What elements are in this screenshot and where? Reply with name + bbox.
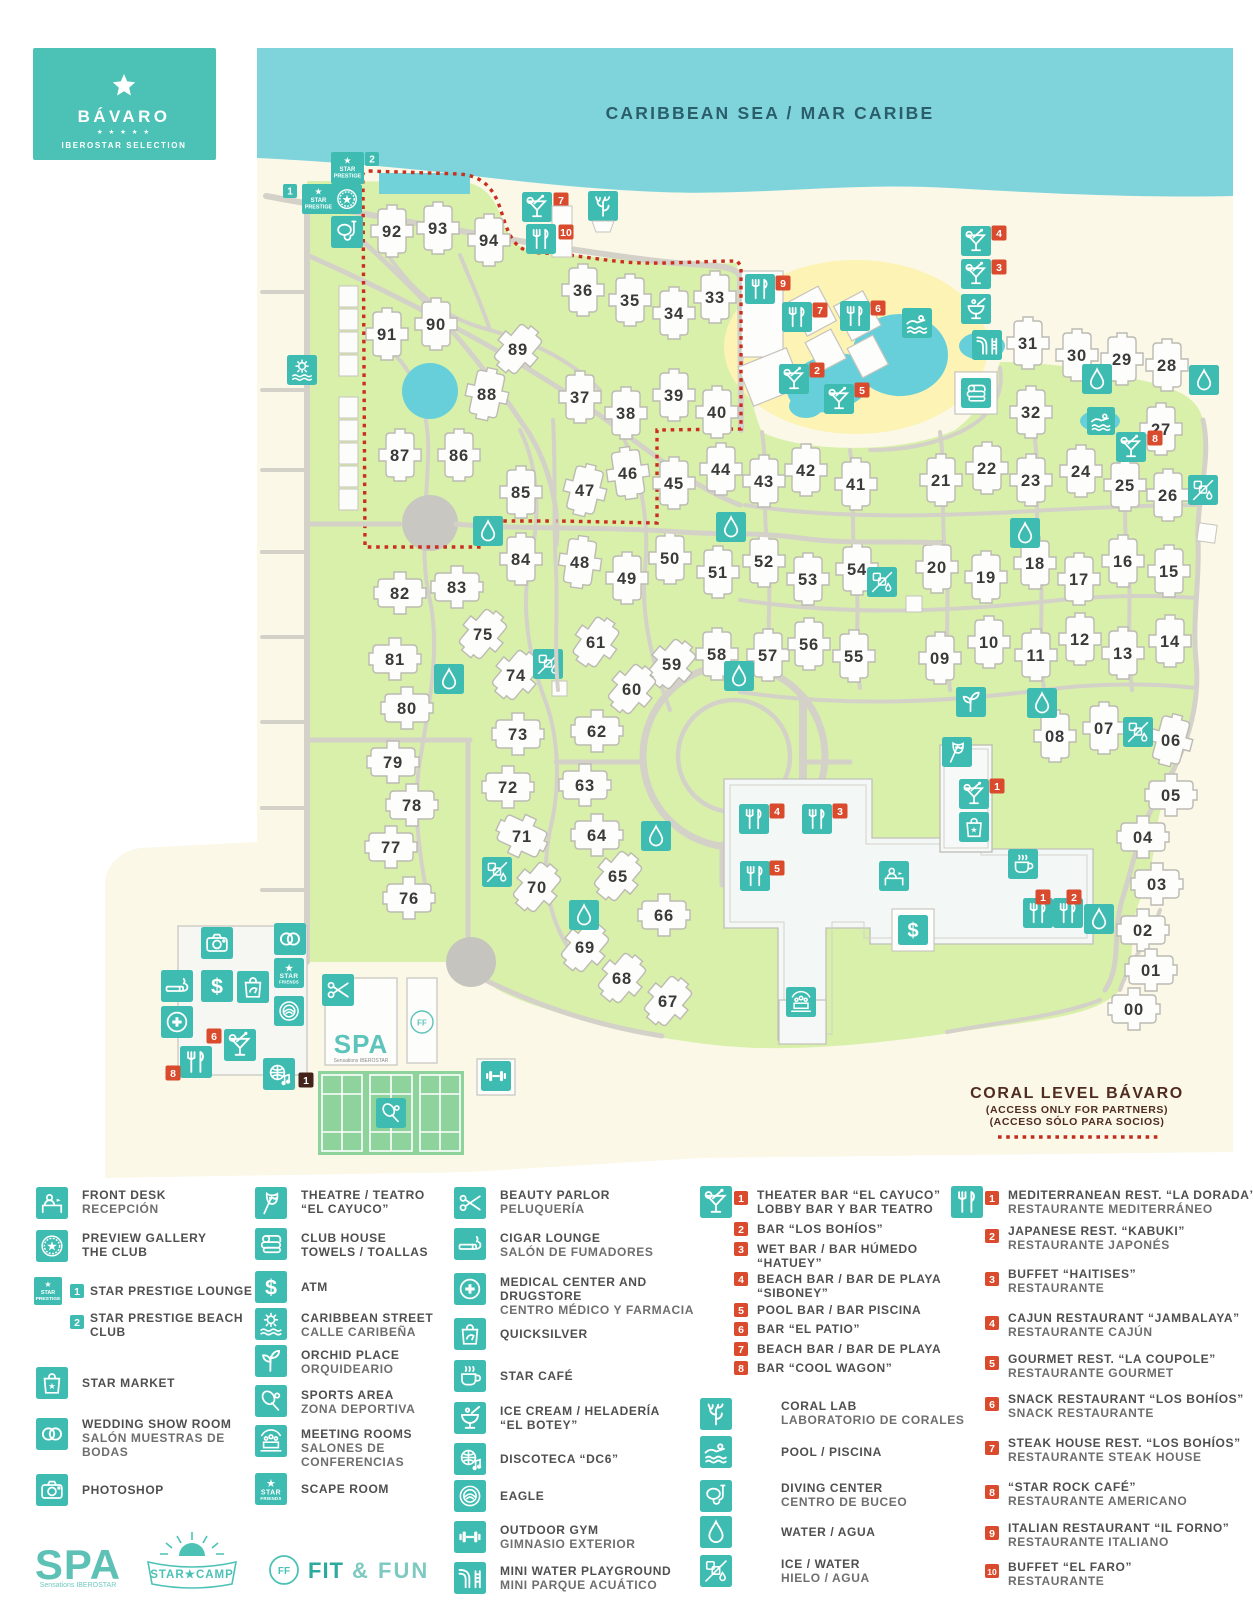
svg-text:05: 05 [1161,787,1181,805]
svg-text:5: 5 [738,1305,744,1317]
svg-text:RESTAURANTE MEDITERRÁNEO: RESTAURANTE MEDITERRÁNEO [1008,1201,1213,1216]
svg-text:04: 04 [1133,829,1153,847]
svg-text:2: 2 [1071,892,1077,904]
svg-text:92: 92 [382,223,402,241]
svg-text:43: 43 [754,473,774,491]
svg-text:82: 82 [390,585,410,603]
svg-text:WEDDING SHOW ROOM: WEDDING SHOW ROOM [82,1417,232,1431]
svg-text:2: 2 [989,1231,995,1243]
svg-text:24: 24 [1071,463,1091,481]
svg-text:22: 22 [977,460,997,478]
svg-text:6: 6 [211,1031,217,1043]
svg-text:CORAL LAB: CORAL LAB [781,1399,857,1413]
svg-text:88: 88 [477,386,497,404]
svg-text:RESTAURANTE CAJÚN: RESTAURANTE CAJÚN [1008,1324,1153,1339]
svg-text:ORQUIDEARIO: ORQUIDEARIO [301,1362,394,1376]
svg-text:5: 5 [774,863,780,875]
svg-text:69: 69 [575,939,595,957]
svg-text:STAR PRESTIGE BEACH: STAR PRESTIGE BEACH [90,1311,243,1325]
svg-text:61: 61 [586,634,606,652]
svg-text:1: 1 [738,1193,744,1205]
svg-text:4: 4 [738,1274,744,1286]
svg-text:77: 77 [381,839,401,857]
svg-text:63: 63 [575,777,595,795]
svg-text:DISCOTECA “DC6”: DISCOTECA “DC6” [500,1452,619,1466]
svg-text:BUFFET “HAITISES”: BUFFET “HAITISES” [1008,1267,1136,1281]
svg-text:MEDITERRANEAN REST. “LA DORADA: MEDITERRANEAN REST. “LA DORADA” [1008,1188,1253,1202]
svg-text:70: 70 [527,879,547,897]
svg-text:FIT: FIT [308,1558,344,1583]
svg-text:5: 5 [859,385,865,397]
svg-text:54: 54 [847,561,867,579]
svg-text:67: 67 [658,993,678,1011]
svg-text:40: 40 [707,404,727,422]
svg-text:PELUQUERÍA: PELUQUERÍA [500,1201,585,1216]
svg-text:BEACH BAR / BAR DE PLAYA: BEACH BAR / BAR DE PLAYA [757,1342,941,1356]
svg-text:RECEPCIÓN: RECEPCIÓN [82,1201,159,1216]
svg-text:“SIBONEY”: “SIBONEY” [757,1286,828,1300]
svg-text:44: 44 [711,461,731,479]
svg-text:IBEROSTAR SELECTION: IBEROSTAR SELECTION [62,141,187,150]
svg-text:73: 73 [508,726,528,744]
svg-text:RESTAURANTE STEAK HOUSE: RESTAURANTE STEAK HOUSE [1008,1450,1202,1464]
svg-text:BAR “COOL WAGON”: BAR “COOL WAGON” [757,1361,892,1375]
svg-text:41: 41 [846,476,866,494]
svg-text:THEATER BAR “EL CAYUCO”: THEATER BAR “EL CAYUCO” [757,1188,941,1202]
svg-text:34: 34 [664,305,684,323]
svg-text:RESTAURANTE AMERICANO: RESTAURANTE AMERICANO [1008,1494,1187,1508]
svg-text:POOL BAR / BAR PISCINA: POOL BAR / BAR PISCINA [757,1303,921,1317]
svg-text:GOURMET REST. “LA COUPOLE”: GOURMET REST. “LA COUPOLE” [1008,1352,1216,1366]
svg-text:DIVING CENTER: DIVING CENTER [781,1481,883,1495]
svg-text:SPORTS AREA: SPORTS AREA [301,1388,394,1402]
svg-text:36: 36 [573,282,593,300]
svg-text:TOWELS / TOALLAS: TOWELS / TOALLAS [301,1245,428,1259]
svg-text:49: 49 [617,570,637,588]
svg-text:26: 26 [1158,487,1178,505]
svg-text:FRONT DESK: FRONT DESK [82,1188,166,1202]
svg-text:RESTAURANTE JAPONÉS: RESTAURANTE JAPONÉS [1008,1237,1170,1252]
svg-text:CORAL LEVEL BÁVARO: CORAL LEVEL BÁVARO [970,1083,1184,1102]
svg-text:1: 1 [287,187,293,198]
svg-text:ZONA DEPORTIVA: ZONA DEPORTIVA [301,1402,415,1416]
svg-text:15: 15 [1159,563,1179,581]
svg-text:2: 2 [738,1224,744,1236]
svg-text:CLUB HOUSE: CLUB HOUSE [301,1231,386,1245]
svg-text:CARIBBEAN SEA / MAR CARIBE: CARIBBEAN SEA / MAR CARIBE [606,103,935,123]
svg-text:STAR★CAMP: STAR★CAMP [150,1568,234,1581]
svg-text:65: 65 [608,868,628,886]
svg-text:MEETING ROOMS: MEETING ROOMS [301,1427,412,1441]
svg-text:64: 64 [587,827,607,845]
svg-text:51: 51 [708,564,728,582]
svg-text:6: 6 [875,303,881,315]
svg-text:13: 13 [1113,645,1133,663]
svg-text:85: 85 [511,484,531,502]
svg-text:19: 19 [976,569,996,587]
svg-text:10: 10 [979,634,999,652]
svg-text:76: 76 [399,890,419,908]
svg-text:06: 06 [1161,732,1181,750]
svg-text:78: 78 [402,797,422,815]
svg-text:Sensations IBEROSTAR: Sensations IBEROSTAR [334,1058,389,1064]
svg-text:STAR PRESTIGE LOUNGE: STAR PRESTIGE LOUNGE [90,1284,252,1298]
svg-text:59: 59 [662,656,682,674]
svg-text:HIELO / AGUA: HIELO / AGUA [781,1571,870,1585]
svg-text:3: 3 [738,1244,744,1256]
svg-text:CIGAR LOUNGE: CIGAR LOUNGE [500,1231,601,1245]
svg-text:RESTAURANTE GOURMET: RESTAURANTE GOURMET [1008,1366,1174,1380]
svg-text:1: 1 [303,1075,309,1087]
svg-text:55: 55 [844,648,864,666]
svg-text:SALONES DE: SALONES DE [301,1441,385,1455]
svg-text:72: 72 [498,779,518,797]
svg-text:BAR “LOS BOHÍOS”: BAR “LOS BOHÍOS” [757,1221,883,1236]
svg-text:CALLE CARIBEÑA: CALLE CARIBEÑA [301,1324,416,1339]
svg-text:1: 1 [994,781,1000,793]
svg-text:60: 60 [622,681,642,699]
svg-text:48: 48 [570,554,590,572]
svg-text:SPA: SPA [334,1029,389,1059]
svg-text:MEDICAL CENTER AND: MEDICAL CENTER AND [500,1275,647,1289]
svg-text:07: 07 [1094,720,1114,738]
svg-text:02: 02 [1133,922,1153,940]
svg-text:71: 71 [512,828,532,846]
svg-text:BEACH BAR / BAR DE PLAYA: BEACH BAR / BAR DE PLAYA [757,1272,941,1286]
svg-text:42: 42 [796,462,816,480]
svg-text:BEAUTY PARLOR: BEAUTY PARLOR [500,1188,610,1202]
svg-text:Sensations IBEROSTAR: Sensations IBEROSTAR [40,1582,117,1589]
svg-text:LOBBY BAR Y BAR TEATRO: LOBBY BAR Y BAR TEATRO [757,1202,933,1216]
svg-text:BUFFET “EL FARO”: BUFFET “EL FARO” [1008,1560,1132,1574]
svg-text:LABORATORIO DE CORALES: LABORATORIO DE CORALES [781,1413,964,1427]
svg-text:8: 8 [170,1068,176,1080]
svg-text:4: 4 [774,806,780,818]
svg-text:THE CLUB: THE CLUB [82,1245,147,1259]
svg-text:1: 1 [1040,892,1046,904]
svg-text:ORCHID PLACE: ORCHID PLACE [301,1348,400,1362]
svg-text:3: 3 [996,262,1002,274]
svg-text:57: 57 [758,647,778,665]
svg-text:66: 66 [654,907,674,925]
svg-text:46: 46 [618,465,638,483]
svg-text:CLUB: CLUB [90,1325,126,1339]
svg-text:4: 4 [989,1318,995,1330]
svg-text:SCAPE ROOM: SCAPE ROOM [301,1482,389,1496]
svg-text:8: 8 [1152,433,1158,445]
svg-text:SNACK RESTAURANTE: SNACK RESTAURANTE [1008,1406,1154,1420]
svg-text:21: 21 [931,472,951,490]
svg-text:31: 31 [1018,335,1038,353]
svg-text:83: 83 [447,579,467,597]
svg-text:STAR MARKET: STAR MARKET [82,1376,175,1390]
svg-text:(ACCESS ONLY FOR PARTNERS): (ACCESS ONLY FOR PARTNERS) [986,1104,1168,1116]
svg-text:86: 86 [449,447,469,465]
svg-text:62: 62 [587,723,607,741]
svg-text:CENTRO DE BUCEO: CENTRO DE BUCEO [781,1495,907,1509]
svg-text:CENTRO MÉDICO Y FARMACIA: CENTRO MÉDICO Y FARMACIA [500,1302,694,1317]
svg-text:50: 50 [660,550,680,568]
svg-text:25: 25 [1115,477,1135,495]
svg-text:8: 8 [738,1363,744,1375]
svg-text:MINI PARQUE ACUÁTICO: MINI PARQUE ACUÁTICO [500,1577,657,1592]
svg-text:7: 7 [989,1443,995,1455]
svg-text:CARIBBEAN STREET: CARIBBEAN STREET [301,1311,433,1325]
svg-text:CAJUN RESTAURANT “JAMBALAYA”: CAJUN RESTAURANT “JAMBALAYA” [1008,1311,1240,1325]
svg-text:75: 75 [473,626,493,644]
svg-text:20: 20 [927,559,947,577]
svg-text:OUTDOOR GYM: OUTDOOR GYM [500,1523,599,1537]
svg-text:16: 16 [1113,553,1133,571]
svg-text:SALÓN DE FUMADORES: SALÓN DE FUMADORES [500,1244,653,1259]
svg-text:“STAR ROCK CAFÉ”: “STAR ROCK CAFÉ” [1008,1479,1136,1494]
svg-text:52: 52 [754,553,774,571]
svg-text:BAR “EL PATIO”: BAR “EL PATIO” [757,1322,860,1336]
svg-text:MINI WATER PLAYGROUND: MINI WATER PLAYGROUND [500,1564,671,1578]
svg-text:1: 1 [74,1286,80,1298]
svg-text:01: 01 [1141,962,1161,980]
svg-text:FF: FF [417,1019,427,1028]
svg-text:91: 91 [377,326,397,344]
svg-text:39: 39 [664,387,684,405]
svg-text:WET BAR / BAR HÚMEDO: WET BAR / BAR HÚMEDO [757,1241,918,1256]
svg-text:4: 4 [996,228,1002,240]
svg-text:18: 18 [1025,555,1045,573]
svg-text:1: 1 [989,1193,995,1205]
svg-text:2: 2 [74,1317,80,1329]
svg-text:5: 5 [989,1358,995,1370]
svg-text:WATER / AGUA: WATER / AGUA [781,1525,876,1539]
svg-text:SNACK RESTAURANT “LOS BOHÍOS”: SNACK RESTAURANT “LOS BOHÍOS” [1008,1391,1244,1406]
svg-text:PREVIEW GALLERY: PREVIEW GALLERY [82,1231,207,1245]
svg-text:3: 3 [989,1274,995,1286]
svg-text:89: 89 [508,341,528,359]
svg-text:03: 03 [1147,876,1167,894]
svg-text:12: 12 [1070,631,1090,649]
svg-text:(ACCESO SÓLO PARA SOCIOS): (ACCESO SÓLO PARA SOCIOS) [990,1115,1165,1128]
svg-text:ICE CREAM / HELADERÍA: ICE CREAM / HELADERÍA [500,1403,660,1418]
svg-text:“EL CAYUCO”: “EL CAYUCO” [301,1202,389,1216]
svg-text:BODAS: BODAS [82,1445,128,1459]
svg-text:53: 53 [798,571,818,589]
svg-text:7: 7 [817,305,823,317]
svg-text:35: 35 [620,292,640,310]
svg-text:47: 47 [575,482,595,500]
svg-text:“EL BOTEY”: “EL BOTEY” [500,1418,578,1432]
svg-text:79: 79 [383,754,403,772]
svg-text:00: 00 [1124,1001,1144,1019]
svg-text:84: 84 [511,551,531,569]
svg-text:ATM: ATM [301,1280,328,1294]
svg-text:68: 68 [612,970,632,988]
svg-text:32: 32 [1021,404,1041,422]
svg-text:RESTAURANTE: RESTAURANTE [1008,1281,1104,1295]
svg-text:“HATUEY”: “HATUEY” [757,1256,822,1270]
svg-text:GIMNASIO EXTERIOR: GIMNASIO EXTERIOR [500,1537,636,1551]
svg-text:80: 80 [397,700,417,718]
svg-text:33: 33 [705,289,725,307]
svg-text:14: 14 [1160,633,1180,651]
svg-text:23: 23 [1021,472,1041,490]
svg-text:ICE / WATER: ICE / WATER [781,1557,860,1571]
svg-text:& FUN: & FUN [352,1558,429,1583]
svg-text:QUICKSILVER: QUICKSILVER [500,1327,588,1341]
svg-text:SPA: SPA [35,1541,121,1588]
svg-text:7: 7 [738,1344,744,1356]
svg-text:JAPANESE REST. “KABUKI”: JAPANESE REST. “KABUKI” [1008,1224,1185,1238]
svg-text:THEATRE / TEATRO: THEATRE / TEATRO [301,1188,425,1202]
svg-text:93: 93 [428,220,448,238]
svg-text:FF: FF [278,1566,290,1577]
svg-text:6: 6 [989,1399,995,1411]
svg-text:11: 11 [1026,647,1045,665]
svg-text:10: 10 [560,227,572,239]
svg-text:EAGLE: EAGLE [500,1489,544,1503]
svg-text:DRUGSTORE: DRUGSTORE [500,1289,582,1303]
svg-text:★ ★ ★ ★ ★: ★ ★ ★ ★ ★ [97,128,151,136]
svg-text:3: 3 [837,806,843,818]
svg-text:29: 29 [1112,351,1132,369]
svg-text:09: 09 [930,650,950,668]
svg-text:STEAK HOUSE REST. “LOS BOHÍOS”: STEAK HOUSE REST. “LOS BOHÍOS” [1008,1435,1241,1450]
svg-text:BÁVARO: BÁVARO [78,107,171,126]
svg-text:9: 9 [989,1528,995,1540]
svg-text:7: 7 [558,195,564,207]
svg-text:94: 94 [479,232,499,250]
svg-text:9: 9 [780,278,786,290]
svg-text:RESTAURANTE: RESTAURANTE [1008,1574,1104,1588]
svg-text:PHOTOSHOP: PHOTOSHOP [82,1483,164,1497]
svg-text:08: 08 [1045,728,1065,746]
svg-text:RESTAURANTE ITALIANO: RESTAURANTE ITALIANO [1008,1535,1169,1549]
svg-text:8: 8 [989,1487,995,1499]
svg-text:28: 28 [1157,357,1177,375]
svg-text:90: 90 [426,316,446,334]
svg-text:6: 6 [738,1324,744,1336]
svg-text:81: 81 [385,651,405,669]
svg-text:37: 37 [570,389,590,407]
svg-text:56: 56 [799,636,819,654]
svg-text:45: 45 [664,475,684,493]
svg-text:STAR CAFÉ: STAR CAFÉ [500,1368,573,1383]
svg-text:58: 58 [707,646,727,664]
svg-text:SALÓN MUESTRAS DE: SALÓN MUESTRAS DE [82,1430,225,1445]
svg-text:POOL / PISCINA: POOL / PISCINA [781,1445,882,1459]
svg-text:30: 30 [1067,347,1087,365]
svg-text:17: 17 [1069,571,1089,589]
svg-text:2: 2 [369,155,375,166]
svg-text:10: 10 [987,1567,997,1577]
svg-text:2: 2 [814,365,820,377]
svg-text:74: 74 [506,667,526,685]
svg-text:87: 87 [390,447,410,465]
svg-text:ITALIAN RESTAURANT “IL FORNO”: ITALIAN RESTAURANT “IL FORNO” [1008,1521,1229,1535]
svg-text:CONFERENCIAS: CONFERENCIAS [301,1455,404,1469]
svg-text:38: 38 [616,405,636,423]
